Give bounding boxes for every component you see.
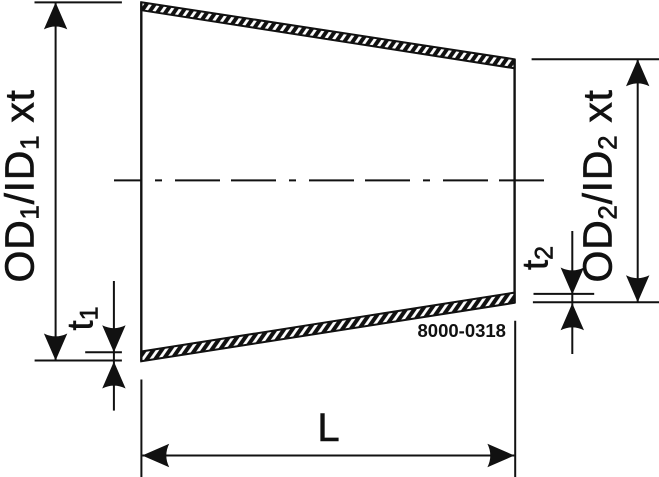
svg-text:OD2/ID2 xt: OD2/ID2 xt bbox=[575, 89, 623, 282]
svg-text:8000-0318: 8000-0318 bbox=[418, 320, 506, 341]
svg-text:L: L bbox=[317, 406, 339, 450]
svg-text:OD1/ID1 xt: OD1/ID1 xt bbox=[0, 89, 45, 282]
